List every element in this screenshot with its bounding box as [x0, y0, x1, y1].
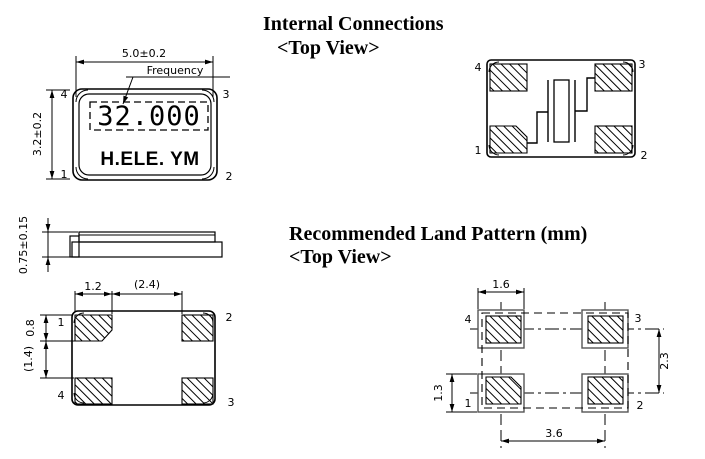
package-lid [79, 232, 215, 242]
dim-arrowhead [46, 224, 51, 232]
pin-label-1: 1 [58, 316, 65, 329]
pad-width-dim: 1.2 [84, 280, 102, 293]
pin-label-3: 3 [635, 312, 642, 325]
col-pitch-dim: 3.6 [545, 427, 563, 440]
pin-label-2: 2 [641, 149, 648, 162]
pad-gap-dim: (2.4) [134, 278, 160, 291]
dim-arrowhead [50, 90, 55, 98]
dim-arrowhead [75, 292, 83, 297]
package-bottom-view: 1.2 (2.4) 0.8 (1.4) 1 2 4 3 [22, 278, 235, 409]
pad-2 [182, 315, 213, 341]
internal-connections-title: Internal Connections [263, 13, 444, 35]
pin-label-4: 4 [61, 88, 68, 101]
pin-label-3: 3 [639, 58, 646, 71]
dim-arrowhead [501, 439, 509, 444]
pin-label-2: 2 [226, 311, 233, 324]
package-thickness-dim: 0.75±0.15 [17, 216, 30, 274]
side-terminal [70, 236, 79, 257]
package-side-view: 0.75±0.15 [17, 216, 222, 274]
drawing-canvas: 32.000 H.ELE. YM Frequency 5.0±0.2 3.2±0… [0, 0, 705, 459]
crystal-element [554, 80, 569, 142]
land-pattern-title: Recommended Land Pattern (mm) [289, 223, 587, 245]
land-pattern-subtitle: <Top View> [289, 246, 392, 268]
package-base [72, 242, 222, 257]
dim-arrowhead [597, 439, 605, 444]
row-pitch-dim: 2.3 [658, 352, 671, 370]
internal-connections-heading: Internal Connections <Top View> [263, 13, 444, 59]
pad-4 [75, 378, 112, 404]
pin-label-4: 4 [58, 389, 65, 402]
dim-arrowhead [104, 292, 112, 297]
internal-connections-subtitle: <Top View> [277, 37, 380, 59]
dim-arrowhead [450, 374, 455, 382]
pad-3 [182, 378, 213, 404]
pin-label-3: 3 [228, 396, 235, 409]
frequency-value: 32.000 [97, 101, 201, 132]
pad-3 [588, 316, 623, 343]
pin-label-1: 1 [61, 168, 68, 181]
internal-connections-view: 4 3 1 2 [475, 58, 648, 162]
pin-label-2: 2 [637, 399, 644, 412]
dim-arrowhead [174, 292, 182, 297]
pad-3 [595, 64, 632, 91]
pin-label-1: 1 [475, 144, 482, 157]
pin-label-1: 1 [465, 397, 472, 410]
dim-arrowhead [44, 370, 49, 378]
package-width-dim: 5.0±0.2 [122, 47, 166, 60]
pad-1 [486, 377, 521, 404]
dim-arrowhead [657, 329, 662, 337]
dim-arrowhead [478, 290, 486, 295]
dim-arrowhead [50, 171, 55, 179]
land-width-dim: 1.6 [492, 278, 510, 291]
pad-4 [490, 64, 527, 91]
datasheet-drawing-page: 32.000 H.ELE. YM Frequency 5.0±0.2 3.2±0… [0, 0, 705, 459]
land-pattern-heading: Recommended Land Pattern (mm) <Top View> [289, 223, 587, 268]
frequency-label: Frequency [147, 64, 204, 77]
dim-arrowhead [657, 385, 662, 393]
dim-arrowhead [44, 333, 49, 341]
dim-arrowhead [76, 60, 84, 65]
land-height-dim: 1.3 [432, 384, 445, 402]
dim-arrowhead [44, 341, 49, 349]
dim-arrowhead [516, 290, 524, 295]
dim-arrowhead [112, 292, 120, 297]
pad-vgap-dim: (1.4) [22, 346, 35, 372]
pin-label-2: 2 [226, 170, 233, 183]
dim-arrowhead [205, 60, 213, 65]
manufacturer-marking: H.ELE. YM [100, 149, 199, 170]
pin-label-3: 3 [223, 88, 230, 101]
package-top-view: 32.000 H.ELE. YM Frequency 5.0±0.2 3.2±0… [31, 47, 233, 183]
dim-arrowhead [46, 257, 51, 265]
pin-label-4: 4 [475, 61, 482, 74]
pad-height-dim: 0.8 [24, 319, 37, 337]
pad-4 [486, 316, 521, 343]
package-height-dim: 3.2±0.2 [31, 112, 44, 156]
land-pattern-view: 1.6 2.3 1.3 3.6 4 3 1 2 [432, 278, 671, 448]
pad-2 [595, 126, 632, 153]
dim-arrowhead [44, 315, 49, 323]
pad-2 [588, 377, 623, 404]
dim-arrowhead [450, 404, 455, 412]
pin-label-4: 4 [465, 313, 472, 326]
